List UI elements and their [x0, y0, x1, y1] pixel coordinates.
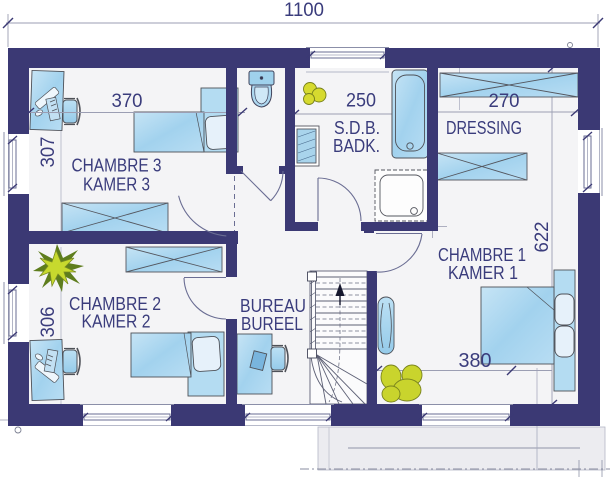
svg-text:370: 370 — [112, 91, 143, 112]
svg-text:380: 380 — [459, 350, 492, 372]
svg-text:BADK.: BADK. — [333, 136, 380, 156]
svg-text:622: 622 — [532, 222, 553, 253]
svg-text:BUREEL: BUREEL — [241, 314, 303, 334]
svg-text:270: 270 — [489, 91, 520, 112]
svg-text:KAMER 2: KAMER 2 — [82, 312, 151, 332]
svg-text:1100: 1100 — [284, 0, 324, 21]
svg-text:DRESSING: DRESSING — [446, 118, 522, 138]
svg-text:KAMER 3: KAMER 3 — [83, 175, 150, 195]
svg-text:BUREAU: BUREAU — [240, 296, 306, 316]
svg-text:CHAMBRE 3: CHAMBRE 3 — [72, 156, 162, 176]
svg-text:307: 307 — [38, 137, 59, 168]
svg-text:KAMER 1: KAMER 1 — [448, 263, 518, 283]
svg-text:250: 250 — [346, 91, 376, 112]
svg-text:S.D.B.: S.D.B. — [334, 118, 380, 138]
svg-text:306: 306 — [38, 307, 59, 338]
svg-text:CHAMBRE 1: CHAMBRE 1 — [438, 245, 526, 265]
